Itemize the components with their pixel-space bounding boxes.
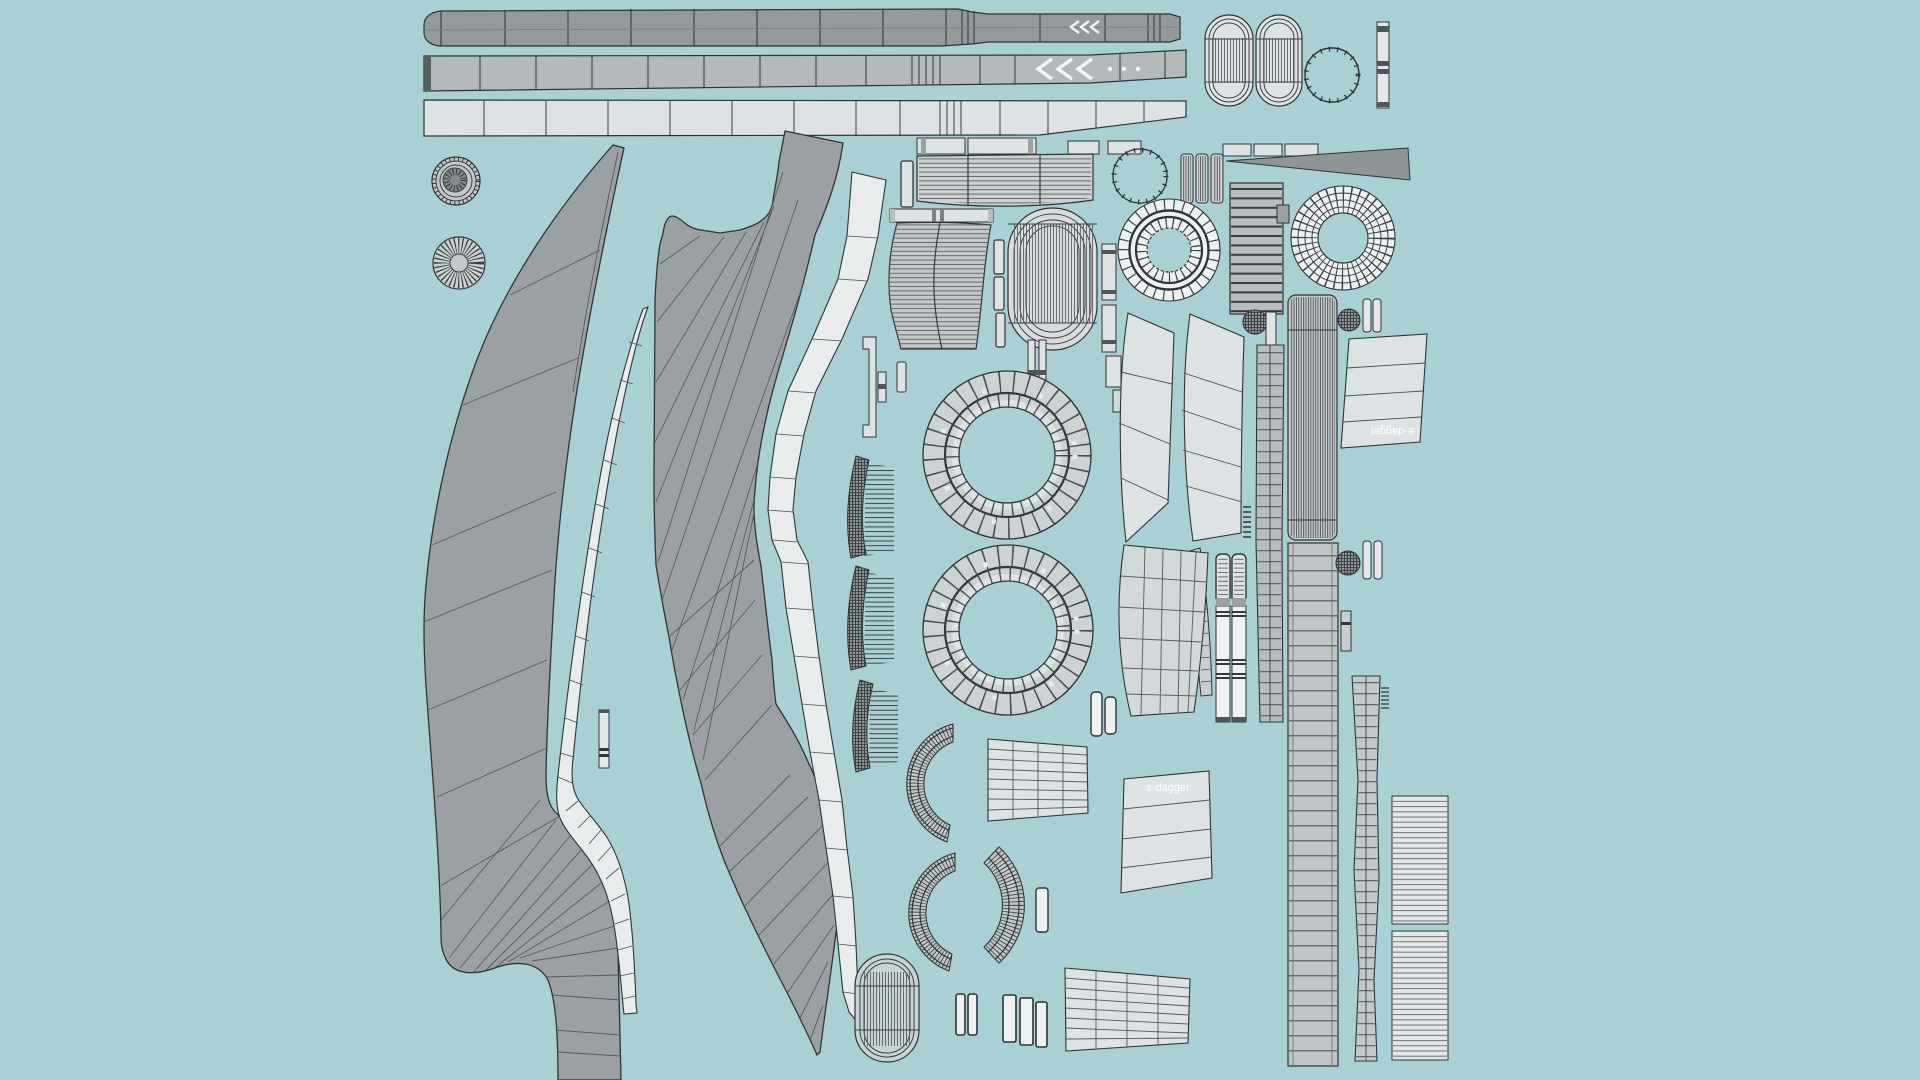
svg-text:s-dagger: s-dagger	[1146, 782, 1190, 794]
svg-text:e-dagger: e-dagger	[1370, 425, 1414, 437]
